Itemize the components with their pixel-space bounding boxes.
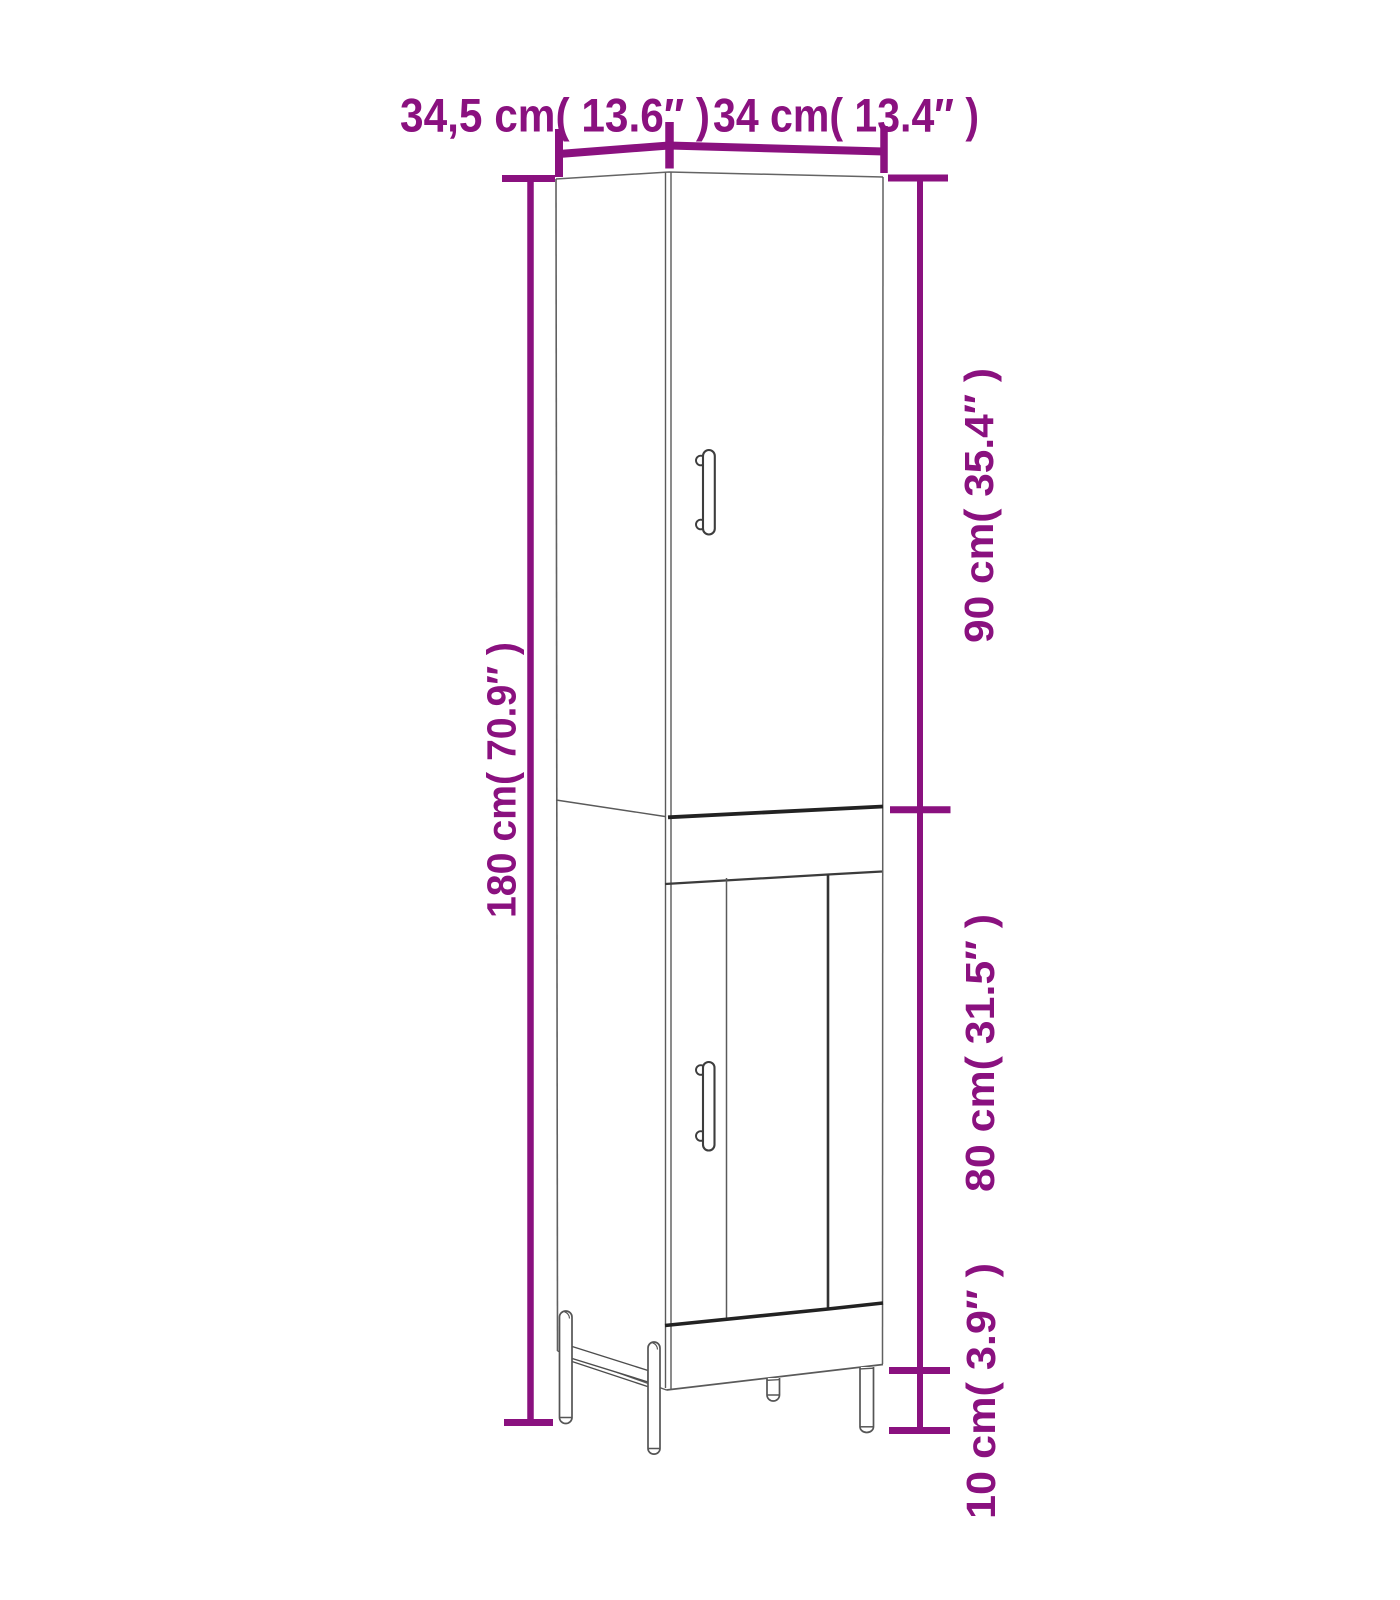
svg-text:80 cm( 31.5″ ): 80 cm( 31.5″ ) bbox=[957, 914, 1003, 1192]
svg-text:34 cm( 13.4″ ): 34 cm( 13.4″ ) bbox=[713, 89, 979, 142]
svg-text:10 cm( 3.9″ ): 10 cm( 3.9″ ) bbox=[958, 1263, 1004, 1519]
svg-text:180 cm( 70.9″ ): 180 cm( 70.9″ ) bbox=[479, 642, 525, 918]
svg-text:90 cm( 35.4″ ): 90 cm( 35.4″ ) bbox=[956, 368, 1002, 643]
svg-text:34,5 cm( 13.6″ ): 34,5 cm( 13.6″ ) bbox=[400, 89, 710, 142]
